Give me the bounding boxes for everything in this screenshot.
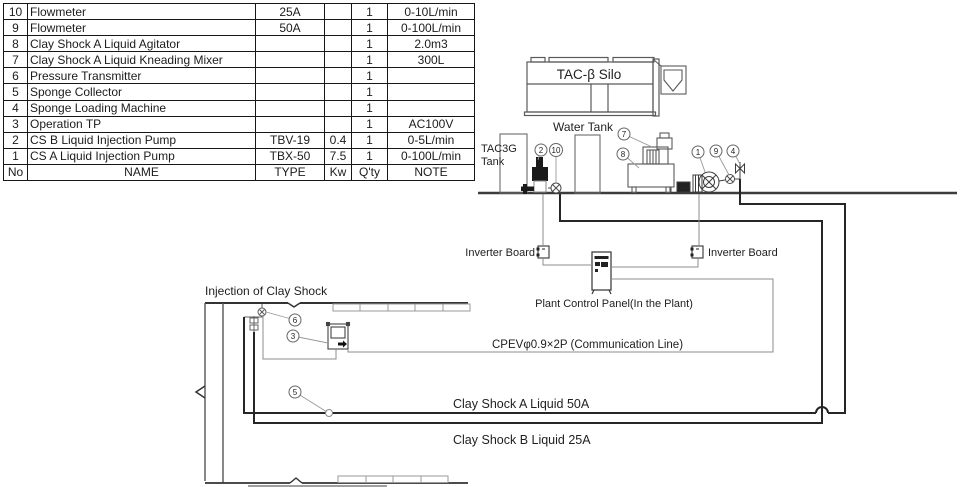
pipe-rack-bottom: [338, 476, 448, 483]
tac3g-label-line1: TAC3G: [481, 143, 517, 155]
callout-1-number: 1: [696, 148, 701, 157]
tac3g-label-line2: Tank: [481, 156, 505, 168]
liquid-b-label: Clay Shock B Liquid 25A: [453, 433, 591, 447]
water-tank-label: Water Tank: [553, 120, 614, 134]
operation-tp-icon: [327, 323, 350, 350]
left-direction-arrow: [196, 386, 205, 398]
kneading-mixer-icon: [643, 133, 672, 164]
callout-3: 3: [287, 330, 299, 342]
inverter-board-left-icon: [537, 246, 550, 258]
silo-label: TAC-β Silo: [557, 67, 622, 82]
piping-diagram: TAC-β Silo Water Tank TAC3G Tank: [0, 0, 960, 487]
sponge-collector-icon: [326, 410, 333, 417]
water-tank: [575, 135, 600, 193]
pipe-a-clay-shock-a: [244, 179, 845, 413]
callout-5: 5: [289, 386, 301, 398]
csb-pump-icon: [521, 157, 548, 194]
injection-label: Injection of Clay Shock: [205, 284, 328, 298]
callout-2-number: 2: [539, 146, 544, 155]
callout-6-number: 6: [293, 316, 298, 325]
flowmeter-9-icon: [726, 175, 741, 184]
callout-8-number: 8: [621, 150, 626, 159]
callout-10-number: 10: [552, 146, 561, 155]
csa-pump-icon: [677, 172, 725, 193]
valve-4-icon: [736, 162, 745, 179]
callout-3-number: 3: [291, 332, 296, 341]
callout-5-number: 5: [293, 388, 298, 397]
liquid-a-label: Clay Shock A Liquid 50A: [453, 397, 590, 411]
callout-2: 2: [535, 144, 547, 156]
pipe-rack-top: [333, 304, 470, 311]
callout-8: 8: [617, 148, 629, 160]
callout-9: 9: [710, 145, 722, 157]
plant-control-panel-icon: [592, 252, 611, 294]
engineering-drawing: 10 Flowmeter 25A 1 0-10L/min 9 Flowmeter…: [0, 0, 960, 487]
inverter-left-label: Inverter Board: [465, 247, 535, 259]
callout-1: 1: [692, 146, 704, 158]
inverter-board-right-icon: [691, 246, 704, 258]
inverter-right-label: Inverter Board: [708, 247, 778, 259]
callout-4: 4: [727, 145, 739, 157]
flowmeter-10-icon: [548, 183, 561, 193]
agitator-tank-icon: [628, 164, 674, 193]
check-valve-stack-icon: [244, 316, 263, 332]
plant-panel-label: Plant Control Panel(In the Plant): [535, 298, 693, 310]
callout-7-number: 7: [622, 130, 627, 139]
injection-valve-icon: [258, 303, 266, 316]
comm-line-label: CPEVφ0.9×2P (Communication Line): [492, 339, 683, 351]
left-shaft: [205, 303, 223, 483]
callout-7: 7: [618, 128, 630, 140]
callout-leaders: [266, 134, 740, 412]
callout-9-number: 9: [714, 147, 719, 156]
callout-10: 10: [550, 144, 563, 157]
callout-4-number: 4: [731, 147, 736, 156]
callout-6: 6: [289, 314, 301, 326]
